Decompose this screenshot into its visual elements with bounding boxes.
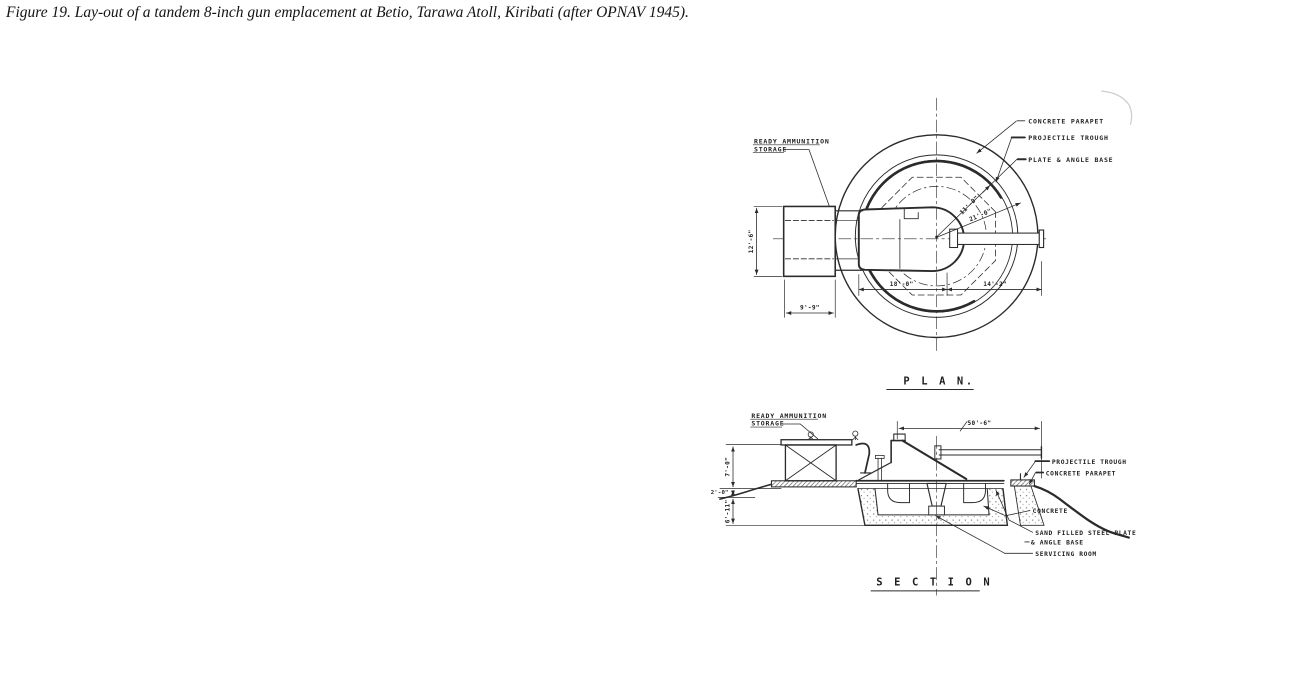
section-dim-storage-height: 7'-0" — [725, 457, 732, 477]
engineering-drawing: 18'-0" 14'-2" 12'-6" 9'-9" 1 — [680, 85, 1215, 673]
section-title: S E C T I O N — [871, 577, 992, 591]
section-label-ready-ammo-line1: READY AMMUNITION — [751, 412, 827, 420]
section-dim-overall: 50'-6" — [968, 420, 992, 427]
section-ground — [720, 481, 856, 499]
barrel-end-cap — [1039, 230, 1043, 247]
section-pit — [858, 483, 1007, 525]
plan-gun-housing — [859, 207, 964, 271]
section-label-projectile-trough: PROJECTILE TROUGH — [1052, 459, 1127, 466]
plan-ready-ammo-storage — [784, 206, 863, 276]
vent-symbol — [853, 431, 858, 440]
section-label-servicing-room: SERVICING ROOM — [1035, 551, 1097, 558]
section-parapet-mound — [1011, 474, 1129, 538]
section-label-concrete: CONCRETE — [1033, 508, 1068, 515]
document-page: Figure 19. Lay-out of a tandem 8-inch gu… — [0, 0, 1313, 673]
plan-label-plate-angle-base: PLATE & ANGLE BASE — [1028, 156, 1113, 164]
plan-label-concrete-parapet: CONCRETE PARAPET — [1028, 117, 1104, 125]
plan-dim-span-left: 18'-0" — [890, 281, 914, 288]
figure-drawing: 18'-0" 14'-2" 12'-6" 9'-9" 1 — [680, 85, 1215, 673]
section-label-ready-ammo-line2: STORAGE — [751, 420, 784, 428]
plan-label-ready-ammo-line2: STORAGE — [754, 145, 787, 153]
section-ready-ammo-storage — [781, 431, 871, 481]
plan-dim-storage-width: 9'-9" — [800, 305, 820, 312]
section-dim-pit-depth: 6'-11" — [725, 500, 732, 524]
figure-caption: Figure 19. Lay-out of a tandem 8-inch gu… — [6, 4, 689, 22]
plan-label-ready-ammo-line1: READY AMMUNITION — [754, 138, 830, 146]
plan-dim-storage-length: 12'-6" — [748, 230, 755, 254]
hoist-davit — [856, 444, 869, 473]
plan-label-projectile-trough: PROJECTILE TROUGH — [1028, 134, 1108, 142]
section-view: 50'-6" 7'-0" 2'-0" 6'-11" — [711, 412, 1137, 595]
section-label-sand-filled-plate: SAND FILLED STEEL PLATE — [1035, 530, 1136, 537]
drawing-root: 18'-0" 14'-2" 12'-6" 9'-9" 1 — [711, 91, 1137, 595]
plan-dim-span-right: 14'-2" — [983, 281, 1007, 288]
plan-dim-radius-outer: 21'-0" — [968, 208, 993, 224]
scan-artifact — [1102, 91, 1132, 124]
plan-title: P L A N. — [887, 376, 975, 390]
plan-view: 18'-0" 14'-2" 12'-6" 9'-9" 1 — [748, 98, 1113, 389]
plan-title-text: P L A N. — [903, 376, 974, 388]
section-label-concrete-parapet: CONCRETE PARAPET — [1046, 471, 1116, 478]
section-title-text: S E C T I O N — [876, 577, 992, 589]
section-label-angle-base: & ANGLE BASE — [1031, 540, 1084, 547]
section-dim-parapet-height: 2'-0" — [711, 490, 729, 496]
